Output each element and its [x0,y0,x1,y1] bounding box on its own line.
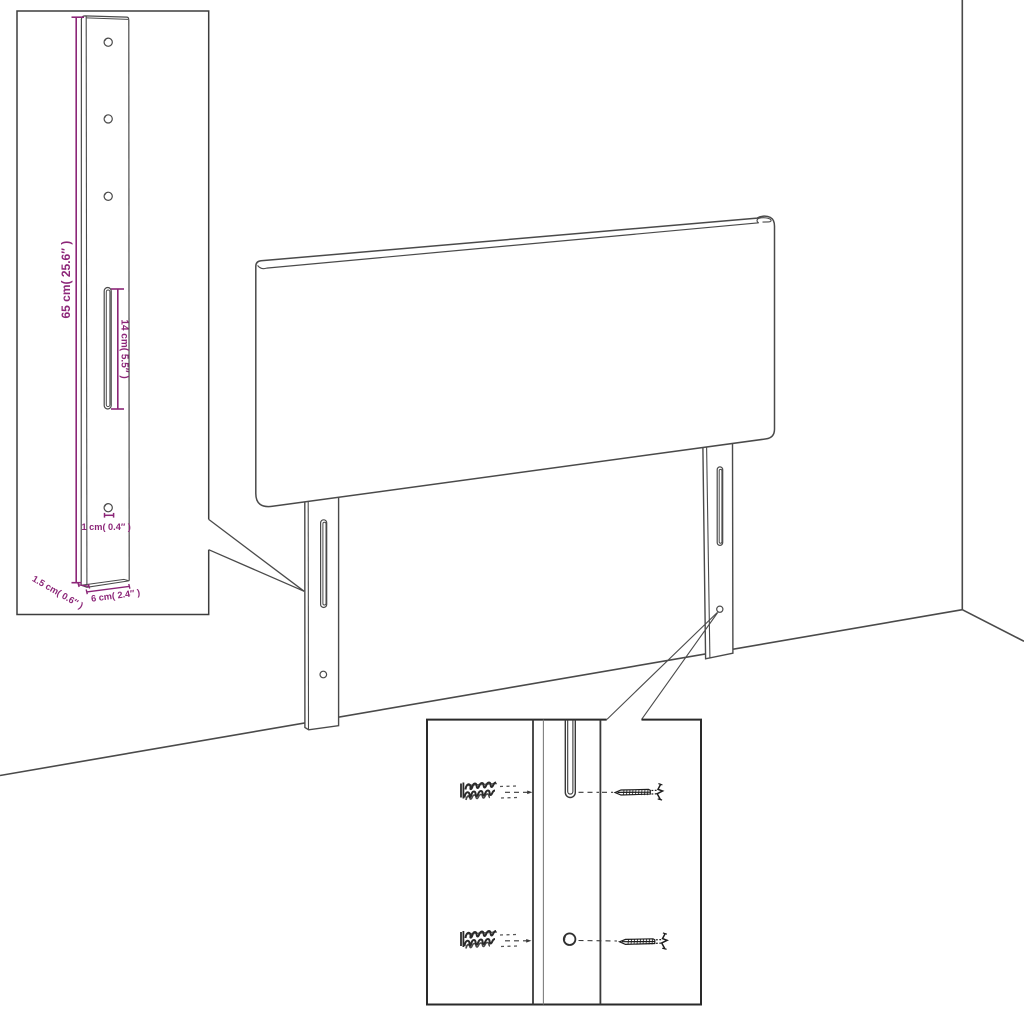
svg-text:14 cm( 5.5″ ): 14 cm( 5.5″ ) [118,319,129,378]
svg-text:1 cm( 0.4″ ): 1 cm( 0.4″ ) [82,522,131,532]
svg-text:65 cm( 25.6″ ): 65 cm( 25.6″ ) [59,241,73,319]
